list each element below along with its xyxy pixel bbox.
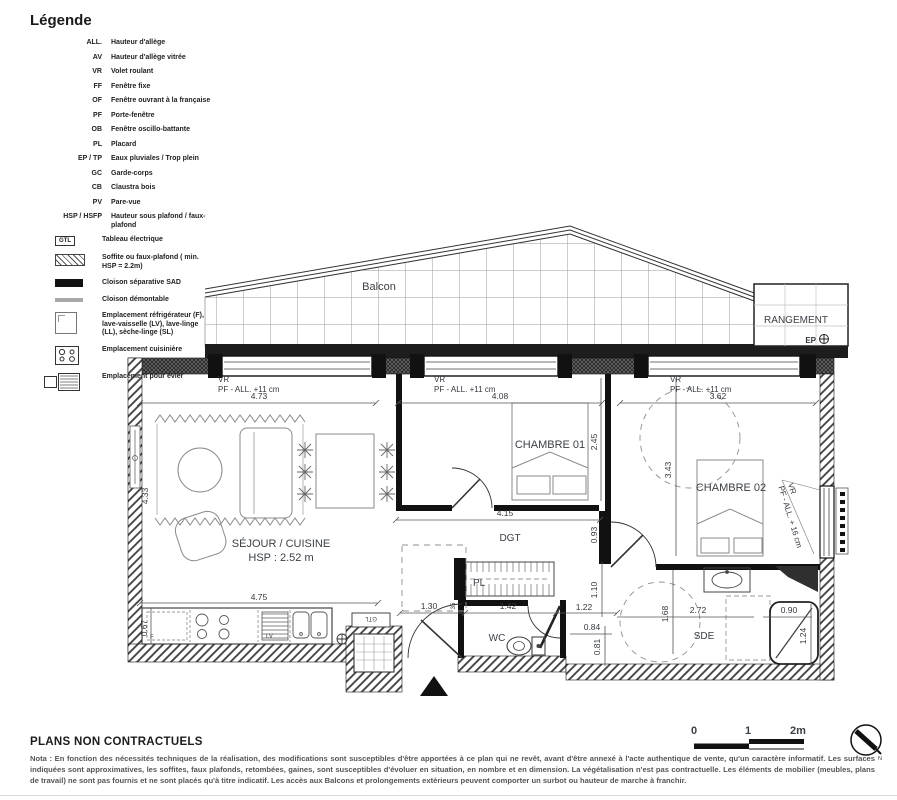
dishwasher-label: LV xyxy=(266,634,273,640)
window2-label-line2: PF - ALL. +11 cm xyxy=(434,385,496,394)
dashed-guides xyxy=(402,388,740,662)
legend-row: AVHauteur d'allège vitrée xyxy=(30,54,245,63)
legend-row-cooktop: Emplacement cuisinière xyxy=(30,346,245,365)
window-right xyxy=(820,486,834,558)
kitchen xyxy=(142,608,394,672)
armchair xyxy=(172,508,229,564)
sofa xyxy=(240,428,292,518)
legend-row: FFFenêtre fixe xyxy=(30,83,245,92)
legend-row-soffit: Soffite ou faux-plafond ( min. HSP = 2.2… xyxy=(30,254,245,271)
dim-sejour-width: 4.75 xyxy=(251,592,268,602)
entrance-arrow xyxy=(420,676,448,696)
sejour-hsp-label: HSP : 2.52 m xyxy=(248,552,313,564)
legend-row: OFFenêtre ouvrant à la française xyxy=(30,97,245,106)
wc-door-arc xyxy=(528,606,560,638)
legend-row-sad: Cloison séparative SAD xyxy=(30,279,245,288)
dim-wall-093: 0.93 xyxy=(589,526,599,543)
window-chambre01 xyxy=(424,356,558,376)
window-right-label: VR PF - ALL. + 16 cm xyxy=(777,482,814,549)
dim-window3: 3.62 xyxy=(710,391,727,401)
dim-chambre01-width: 4.15 xyxy=(497,508,514,518)
floor-plan-page: { "legend": { "title": "Légende", "abbre… xyxy=(0,0,897,800)
room-label-wc: WC xyxy=(489,633,506,644)
footer: PLANS NON CONTRACTUELS Nota : En fonctio… xyxy=(30,736,875,786)
dim-chambre01-height: 2.45 xyxy=(589,433,599,450)
sad-wall-symbol xyxy=(55,279,83,287)
soffit-symbol xyxy=(55,254,85,266)
legend-row: EP / TPEaux pluviales / Trop plein xyxy=(30,155,245,164)
legend-row: PVPare-vue xyxy=(30,199,245,208)
dim-passage: 0.84 xyxy=(584,622,601,632)
room-label-sde: SDE xyxy=(694,631,715,642)
ep-label: EP xyxy=(805,336,816,345)
window2-label-line1: VR xyxy=(434,375,445,384)
gtl-symbol: GTL xyxy=(55,236,75,246)
footer-nota: Nota : En fonction des nécessités techni… xyxy=(30,754,875,786)
dim-shower-width: 0.90 xyxy=(781,605,798,615)
chambre02-bed xyxy=(697,460,763,556)
coffee-table xyxy=(178,448,222,492)
dim-window1: 4.73 xyxy=(251,391,268,401)
removable-wall-symbol xyxy=(55,298,83,302)
duct-block xyxy=(775,566,818,592)
dim-chambre02-height: 3.43 xyxy=(663,461,673,478)
dim-sde-width: 2.72 xyxy=(690,605,707,615)
room-label-chambre02: CHAMBRE 02 xyxy=(696,482,766,494)
window3-label-line1: VR xyxy=(670,375,681,384)
entry-door-leaf xyxy=(421,620,462,658)
appliance-slot-symbol xyxy=(55,312,77,334)
dim-shower-height: 1.24 xyxy=(798,627,808,644)
dim-kitchen-depth: 0.67 xyxy=(139,619,149,636)
dim-sejour-height: 4.33 xyxy=(140,487,150,504)
legend-row: VRVolet roulant xyxy=(30,68,245,77)
kitchen-counter xyxy=(142,608,332,644)
legend-row: GCGarde-corps xyxy=(30,170,245,179)
balcony xyxy=(205,226,848,358)
window-chambre02 xyxy=(648,356,800,376)
svg-text:N: N xyxy=(878,756,882,762)
dining-table xyxy=(316,434,374,508)
rangement-label: RANGEMENT xyxy=(764,315,828,326)
legend-row: HSP / HSFPHauteur sous plafond / faux-pl… xyxy=(30,213,245,230)
legend-row-sink: Emplacement pour évier xyxy=(30,373,245,391)
chambre01-bed xyxy=(512,403,588,500)
washbasin xyxy=(712,572,742,588)
gtl-label: GTL xyxy=(365,615,377,621)
dim-wc-width: 1.22 xyxy=(576,602,593,612)
dim-entry: 1.30 xyxy=(421,601,438,611)
room-label-sejour: SÉJOUR / CUISINE xyxy=(232,537,330,550)
fridge-label: F xyxy=(150,635,154,641)
legend-row-appliances: Emplacement réfrigérateur (F), lave-vais… xyxy=(30,312,245,338)
windows xyxy=(208,354,848,558)
dim-jamb: 35 xyxy=(451,602,457,609)
legend: Légende ALL.Hauteur d'allège AVHauteur d… xyxy=(30,12,245,399)
dim-sde-height: 1.68 xyxy=(660,605,670,622)
cooktop-symbol xyxy=(55,346,79,365)
placard-label: PL xyxy=(473,578,486,589)
rug-fringe-top xyxy=(155,415,305,422)
bottom-divider xyxy=(0,795,897,796)
legend-row-gtl: GTLTableau électrique xyxy=(30,236,245,246)
legend-row: ALL.Hauteur d'allège xyxy=(30,39,245,48)
interior-walls xyxy=(396,374,820,658)
dim-hall: 1.42 xyxy=(500,601,517,611)
sink-symbol xyxy=(44,373,80,391)
dim-081: 0.81 xyxy=(592,638,602,655)
legend-row: CBClaustra bois xyxy=(30,184,245,193)
shutter-box xyxy=(836,488,848,554)
dim-window2: 4.08 xyxy=(492,391,509,401)
room-label-dgt: DGT xyxy=(499,533,520,544)
balcony-label: Balcon xyxy=(362,281,396,293)
dim-corridor: 1.10 xyxy=(589,581,599,598)
footer-title: PLANS NON CONTRACTUELS xyxy=(30,736,875,748)
sde-fixtures xyxy=(704,566,818,664)
legend-row: PFPorte-fenêtre xyxy=(30,112,245,121)
legend-title: Légende xyxy=(30,12,245,29)
legend-row: OBFenêtre oscillo-battante xyxy=(30,126,245,135)
legend-row-demontable: Cloison démontable xyxy=(30,296,245,305)
room-label-chambre01: CHAMBRE 01 xyxy=(515,439,585,451)
toilet xyxy=(507,637,545,655)
legend-row: PLPlacard xyxy=(30,141,245,150)
washer-slot xyxy=(726,596,770,660)
